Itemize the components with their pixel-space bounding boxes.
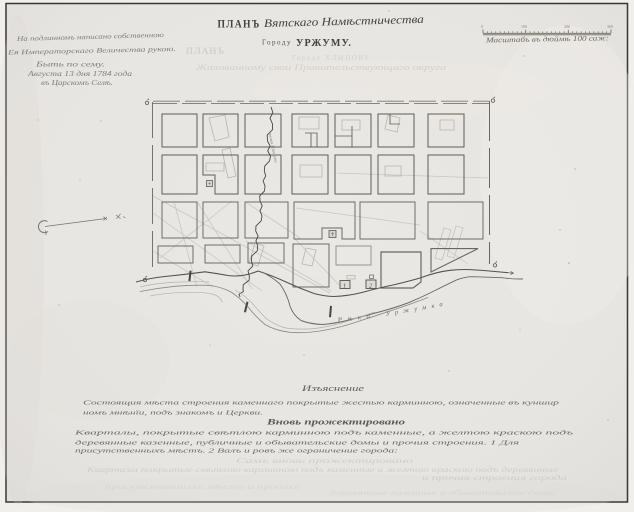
svg-text:Городу: Городу [262,39,291,47]
svg-text:деревянные казенные, публичные: деревянные казенные, публичные и обывате… [75,440,519,447]
svg-text:ПЛАНЪ: ПЛАНЪ [186,46,225,56]
svg-text:въ Царскомъ Селѣ.: въ Царскомъ Селѣ. [41,80,113,87]
svg-text:Быть по сему.: Быть по сему. [34,62,105,69]
svg-text:присутственныхъ мѣстъ. 2 Валъ: присутственныхъ мѣстъ. 2 Валъ и ровъ же … [75,448,398,455]
svg-text:УРЖУМУ.: УРЖУМУ. [296,37,352,49]
svg-text:Жалованному свои Правительству: Жалованному свои Правительствующаго окру… [195,63,446,72]
svg-text:деревянные казенные и обывател: деревянные казенные и обывательские домы [330,490,556,497]
svg-text:ПЛАНЪ: ПЛАНЪ [218,19,261,31]
svg-text:Августа 13 дня 1784 года: Августа 13 дня 1784 года [27,71,133,78]
svg-text:Вновь прожектировано: Вновь прожектировано [265,418,405,427]
svg-text:1: 1 [343,284,346,290]
svg-text:Кварталы покрытые свѣтлою карм: Кварталы покрытые свѣтлою карминною подъ… [85,466,558,474]
svg-text:Кварталы, покрытые свѣтлою кар: Кварталы, покрытые свѣтлою карминною под… [73,430,574,437]
svg-text:присутственныхъ мѣстъ и прочих: присутственныхъ мѣстъ и прочихъ [105,484,301,491]
svg-text:Состоящия мѣста строения камен: Состоящия мѣста строения каменнаго покры… [83,400,560,407]
svg-text:300: 300 [607,24,613,29]
svg-text:Самъ вновь прожектировано: Самъ вновь прожектировано [236,457,414,465]
svg-text:Городу ХЛЫНОВУ: Городу ХЛЫНОВУ [292,54,370,62]
svg-text:2: 2 [369,284,372,290]
svg-text:100: 100 [521,24,527,29]
svg-text:Изъяснение: Изъяснение [301,383,365,393]
svg-text:и прочия строения города: и прочия строения города [422,474,568,482]
svg-text:0: 0 [481,24,483,29]
svg-text:номъ мнѣнїи, подъ знакомъ и Це: номъ мнѣнїи, подъ знакомъ и Церкви. [83,410,264,417]
svg-text:200: 200 [564,24,570,29]
